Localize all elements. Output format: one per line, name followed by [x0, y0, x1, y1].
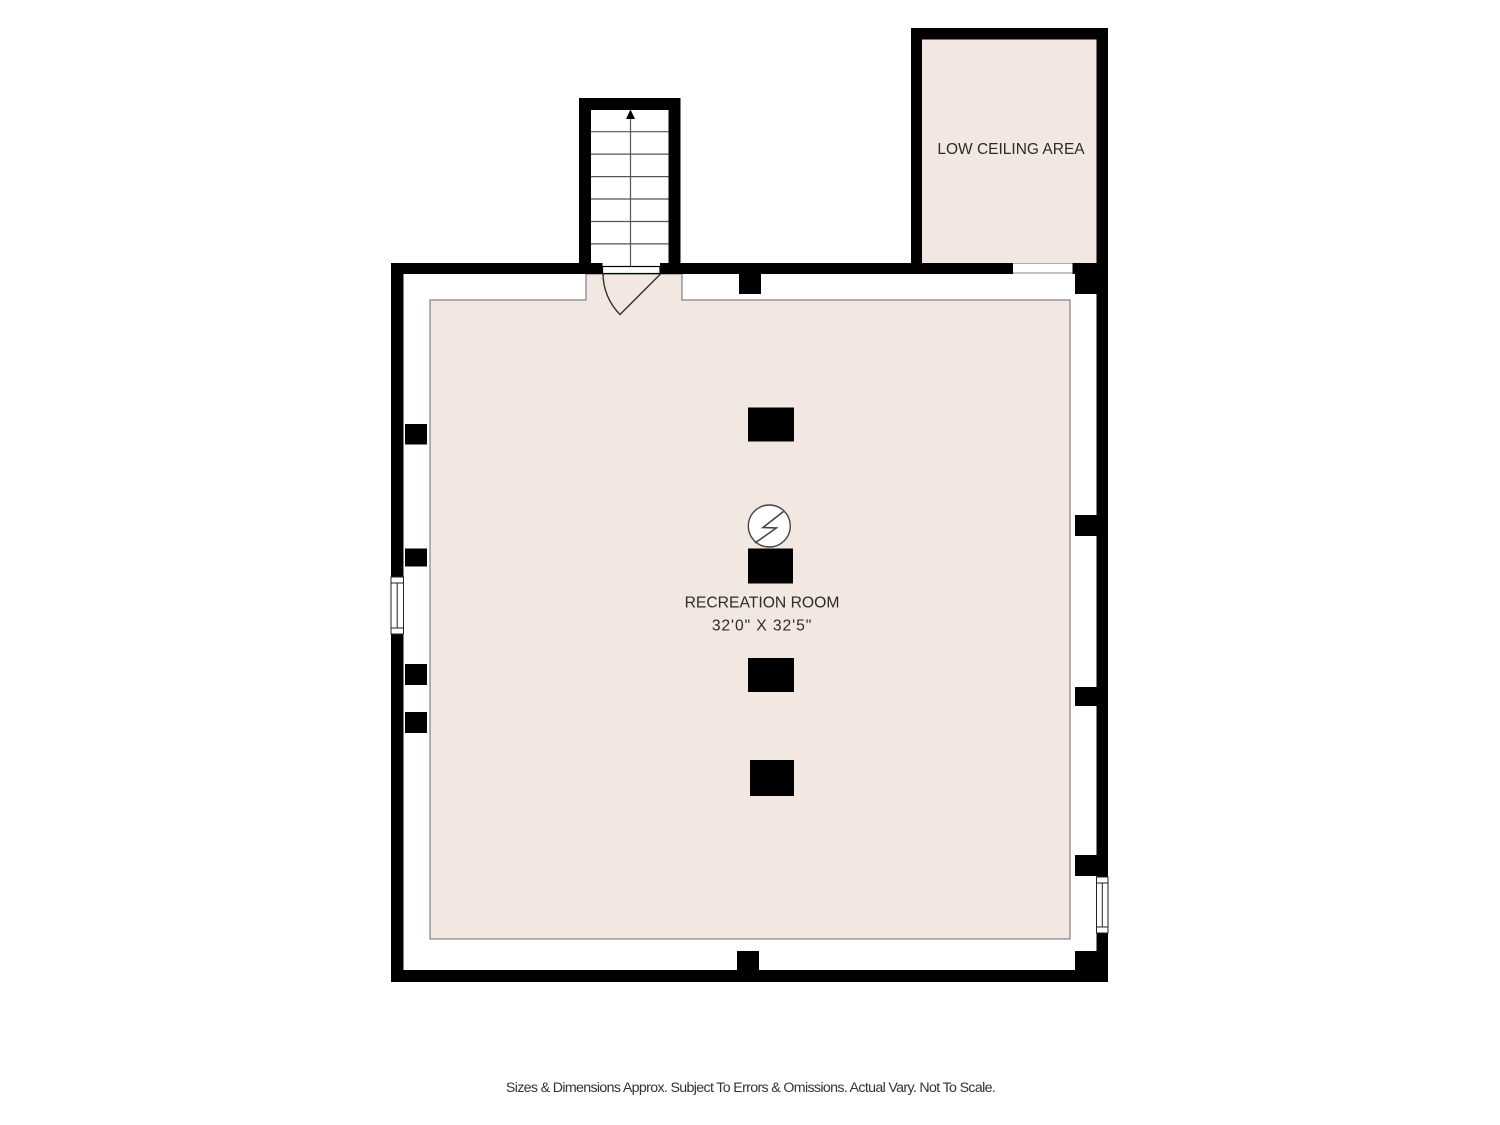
svg-text:32'0" X 32'5": 32'0" X 32'5"	[712, 618, 812, 635]
svg-text:Sizes & Dimensions Approx. Sub: Sizes & Dimensions Approx. Subject To Er…	[506, 1080, 995, 1096]
svg-text:LOW CEILING AREA: LOW CEILING AREA	[937, 141, 1085, 158]
svg-text:RECREATION ROOM: RECREATION ROOM	[685, 595, 840, 612]
